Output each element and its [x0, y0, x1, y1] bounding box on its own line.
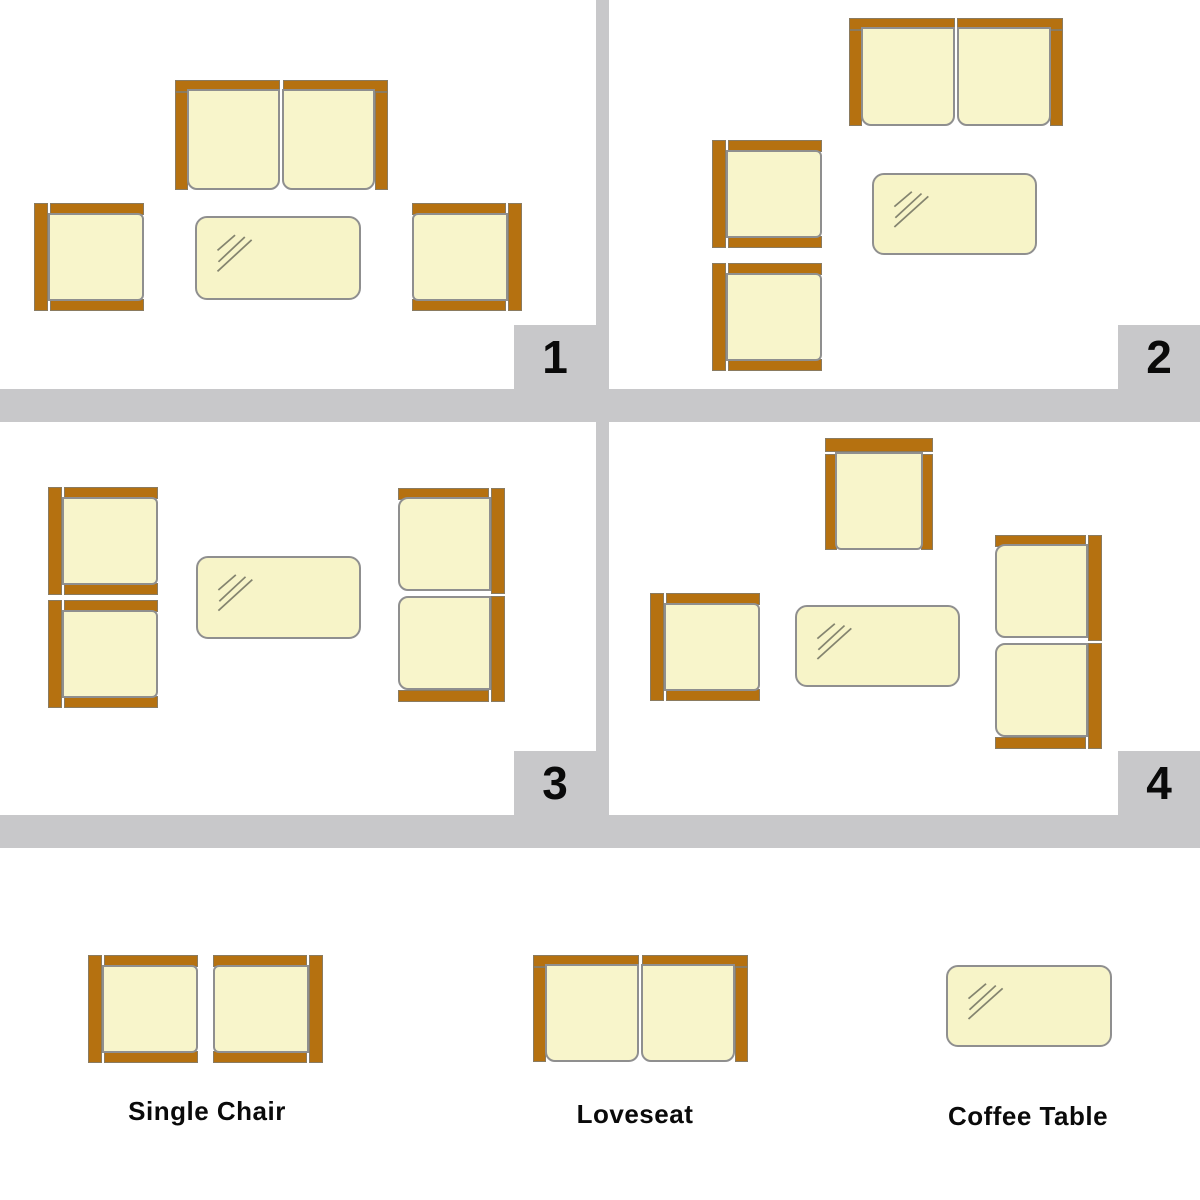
glass-shine-icon — [198, 558, 359, 637]
loveseat — [175, 80, 388, 190]
chair-back-frame — [650, 593, 664, 701]
loveseat-back-frame — [491, 596, 505, 702]
single-chair — [48, 487, 158, 595]
loveseat-arm-frame — [735, 967, 748, 1062]
chair-cushion — [726, 150, 822, 238]
chair-cushion — [412, 213, 508, 301]
loveseat — [533, 955, 748, 1062]
floor-plan-canvas: 1 2 3 4 Single Chair Loveseat Coffee Tab… — [0, 0, 1200, 1200]
loveseat-cushion — [187, 89, 280, 190]
loveseat-cushion — [398, 596, 491, 690]
chair-back-frame — [48, 487, 62, 595]
loveseat — [995, 535, 1102, 749]
chair-cushion — [62, 610, 158, 698]
glass-shine-icon — [874, 175, 1035, 253]
chair-back-frame — [825, 438, 933, 452]
loveseat-cushion — [995, 544, 1088, 638]
single-chair — [213, 955, 323, 1063]
coffee-table — [946, 965, 1112, 1047]
coffee-table — [795, 605, 960, 687]
legend-label-coffee-table: Coffee Table — [878, 1101, 1178, 1132]
loveseat-cushion — [282, 89, 375, 190]
chair-back-frame — [712, 263, 726, 371]
chair-back-frame — [88, 955, 102, 1063]
single-chair — [34, 203, 144, 311]
legend-label-loveseat: Loveseat — [485, 1099, 785, 1130]
chair-cushion — [664, 603, 760, 691]
loveseat-cushion — [995, 643, 1088, 737]
loveseat-arm-frame — [1050, 30, 1063, 126]
furniture-layer — [0, 0, 1200, 1200]
chair-back-frame — [309, 955, 323, 1063]
loveseat-back-frame — [1088, 643, 1102, 749]
single-chair — [712, 263, 822, 371]
loveseat-arm-frame — [995, 737, 1086, 749]
chair-cushion — [835, 452, 923, 550]
chair-cushion — [213, 965, 309, 1053]
loveseat-arm-frame — [375, 92, 388, 190]
legend-label-single-chair: Single Chair — [57, 1096, 357, 1127]
chair-cushion — [726, 273, 822, 361]
loveseat-arm-frame — [398, 690, 489, 702]
single-chair — [712, 140, 822, 248]
single-chair — [825, 438, 933, 550]
loveseat-cushion — [545, 964, 639, 1062]
loveseat-back-frame — [1088, 535, 1102, 641]
chair-back-frame — [48, 600, 62, 708]
chair-cushion — [62, 497, 158, 585]
loveseat-back-frame — [491, 488, 505, 594]
chair-cushion — [102, 965, 198, 1053]
loveseat — [849, 18, 1063, 126]
coffee-table — [195, 216, 361, 300]
glass-shine-icon — [797, 607, 958, 685]
coffee-table — [196, 556, 361, 639]
glass-shine-icon — [197, 218, 359, 298]
loveseat-cushion — [398, 497, 491, 591]
loveseat-cushion — [641, 964, 735, 1062]
loveseat-cushion — [957, 27, 1051, 126]
single-chair — [88, 955, 198, 1063]
glass-shine-icon — [948, 967, 1110, 1045]
single-chair — [412, 203, 522, 311]
loveseat — [398, 488, 505, 702]
single-chair — [650, 593, 760, 701]
chair-back-frame — [712, 140, 726, 248]
loveseat-cushion — [861, 27, 955, 126]
chair-back-frame — [508, 203, 522, 311]
single-chair — [48, 600, 158, 708]
coffee-table — [872, 173, 1037, 255]
chair-back-frame — [34, 203, 48, 311]
chair-cushion — [48, 213, 144, 301]
